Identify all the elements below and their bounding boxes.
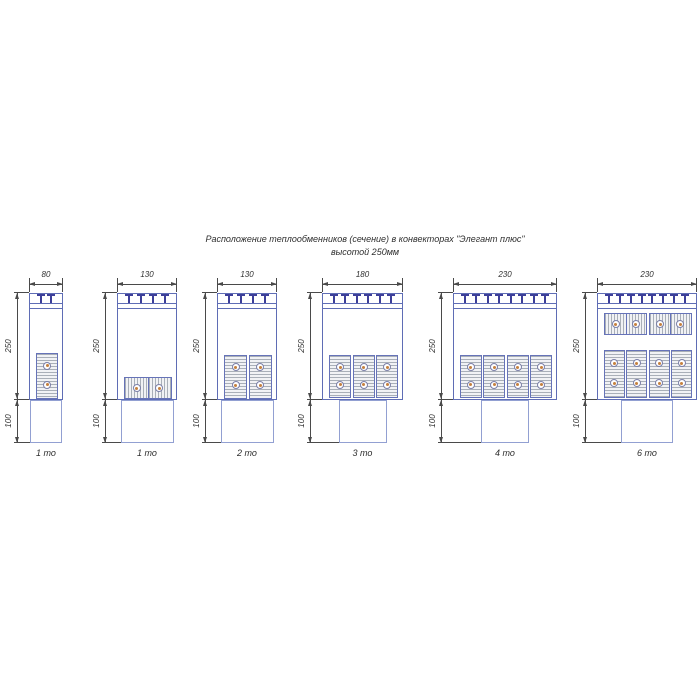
tube-circle — [360, 363, 368, 371]
dimension-arrow-icon — [691, 282, 697, 286]
dimension-arrow-icon — [308, 437, 312, 443]
drawing-title: Расположение теплообменников (сечение) в… — [35, 233, 695, 259]
mounting-clip-icon — [125, 294, 133, 303]
bottom-duct — [621, 400, 673, 443]
dimension-arrow-icon — [103, 437, 107, 443]
dimension-arrow-icon — [217, 282, 223, 286]
dimension-arrow-icon — [203, 293, 207, 299]
body-grille-line — [454, 303, 556, 304]
tube-circle — [655, 379, 663, 387]
dimension-arrow-icon — [439, 400, 443, 406]
mounting-clip-icon — [605, 294, 613, 303]
dimension-arrow-icon — [203, 437, 207, 443]
width-dimension-line — [117, 284, 177, 285]
mounting-clip-icon — [364, 294, 372, 303]
dimension-arrow-icon — [551, 282, 557, 286]
width-dimension-label: 130 — [202, 270, 292, 279]
mounting-clip-icon — [149, 294, 157, 303]
body-grille-line — [598, 308, 696, 309]
mounting-clip-icon — [518, 294, 526, 303]
mounting-clip-icon — [137, 294, 145, 303]
heat-exchanger-block — [604, 350, 625, 398]
dimension-arrow-icon — [583, 400, 587, 406]
body-grille-line — [218, 303, 276, 304]
heat-exchanger-block — [329, 355, 351, 398]
height-dimension-label: 250 — [4, 331, 14, 361]
tube-circle — [467, 363, 475, 371]
drawing-title-line2: высотой 250мм — [35, 246, 695, 259]
mounting-clip-icon — [659, 294, 667, 303]
tube-circle — [43, 381, 51, 389]
tube-circle — [336, 381, 344, 389]
mounting-clip-icon — [648, 294, 656, 303]
dimension-arrow-icon — [439, 437, 443, 443]
tail-height-dimension-label: 100 — [92, 406, 102, 436]
tube-circle — [360, 381, 368, 389]
tube-circle — [514, 381, 522, 389]
tube-circle — [232, 363, 240, 371]
heat-exchanger-block — [249, 355, 272, 399]
mounting-clip-icon — [530, 294, 538, 303]
exchanger-row — [36, 353, 58, 399]
mounting-clip-icon — [376, 294, 384, 303]
tail-height-dimension-label: 100 — [572, 406, 582, 436]
height-dimension-line — [205, 293, 206, 443]
dimension-arrow-icon — [308, 293, 312, 299]
width-dimension-line — [597, 284, 697, 285]
tube-circle — [537, 381, 545, 389]
block-divider-line — [626, 314, 627, 334]
dimension-arrow-icon — [103, 400, 107, 406]
height-dimension-line — [17, 293, 18, 443]
tube-circle — [656, 320, 664, 328]
mounting-clip-icon — [47, 294, 55, 303]
exchanger-row — [460, 355, 552, 398]
bottom-duct — [221, 400, 274, 443]
body-grille-line — [454, 308, 556, 309]
dimension-arrow-icon — [439, 293, 443, 299]
width-dimension-line — [217, 284, 277, 285]
dimension-arrow-icon — [583, 393, 587, 399]
exchanger-row — [124, 377, 172, 399]
dimension-arrow-icon — [117, 282, 123, 286]
height-dimension-line — [310, 293, 311, 443]
mounting-clip-icon — [541, 294, 549, 303]
dimension-arrow-icon — [397, 282, 403, 286]
dimension-arrow-icon — [103, 393, 107, 399]
dimension-arrow-icon — [583, 437, 587, 443]
tube-circle — [678, 379, 686, 387]
body-grille-line — [118, 303, 176, 304]
mounting-clip-icon — [495, 294, 503, 303]
mounting-clip-icon — [353, 294, 361, 303]
unit-count-label: 4 то — [465, 448, 545, 458]
exchanger-row — [604, 350, 692, 398]
unit-count-label: 1 то — [107, 448, 187, 458]
tube-circle — [514, 363, 522, 371]
heat-exchanger-block — [671, 350, 692, 398]
width-dimension-label: 230 — [438, 270, 572, 279]
extension-line — [582, 442, 625, 443]
dimension-arrow-icon — [308, 393, 312, 399]
dimension-arrow-icon — [29, 282, 35, 286]
heat-exchanger-block — [376, 355, 398, 398]
body-grille-line — [218, 308, 276, 309]
height-dimension-label: 250 — [428, 331, 438, 361]
exchanger-row — [604, 313, 692, 335]
dimension-arrow-icon — [597, 282, 603, 286]
body-grille-line — [118, 308, 176, 309]
heat-exchanger-block — [626, 350, 647, 398]
tail-height-dimension-label: 100 — [4, 406, 14, 436]
body-grille-line — [30, 308, 62, 309]
tube-circle — [678, 359, 686, 367]
mounting-clip-icon — [387, 294, 395, 303]
height-dimension-line — [441, 293, 442, 443]
width-dimension-label: 80 — [14, 270, 78, 279]
mounting-clip-icon — [341, 294, 349, 303]
body-grille-line — [323, 303, 402, 304]
exchanger-row — [224, 355, 272, 399]
bottom-duct — [30, 400, 62, 443]
tube-circle — [612, 320, 620, 328]
tube-circle — [256, 363, 264, 371]
exchanger-row — [329, 355, 398, 398]
heat-exchanger-block — [224, 355, 247, 399]
height-dimension-label: 250 — [192, 331, 202, 361]
mounting-clip-icon — [237, 294, 245, 303]
dimension-arrow-icon — [15, 293, 19, 299]
height-dimension-label: 250 — [92, 331, 102, 361]
heat-exchanger-block — [649, 350, 670, 398]
height-dimension-label: 250 — [572, 331, 582, 361]
mounting-clip-icon — [161, 294, 169, 303]
width-dimension-line — [322, 284, 403, 285]
heat-exchanger-block — [353, 355, 375, 398]
dimension-arrow-icon — [15, 437, 19, 443]
tube-circle — [467, 381, 475, 389]
mounting-clip-icon — [638, 294, 646, 303]
unit-count-label: 1 то — [6, 448, 86, 458]
tube-circle — [336, 363, 344, 371]
mounting-clip-icon — [249, 294, 257, 303]
dimension-arrow-icon — [203, 393, 207, 399]
mounting-clip-icon — [484, 294, 492, 303]
mounting-clip-icon — [461, 294, 469, 303]
bottom-duct — [481, 400, 529, 443]
drawing-canvas: Расположение теплообменников (сечение) в… — [0, 0, 700, 700]
dimension-arrow-icon — [271, 282, 277, 286]
tube-circle — [610, 359, 618, 367]
width-dimension-label: 230 — [582, 270, 700, 279]
tube-circle — [256, 381, 264, 389]
heat-exchanger-block — [124, 377, 172, 399]
dimension-arrow-icon — [439, 393, 443, 399]
tube-circle — [537, 363, 545, 371]
tube-circle — [43, 362, 51, 370]
width-dimension-line — [453, 284, 557, 285]
dimension-arrow-icon — [453, 282, 459, 286]
unit-count-label: 6 то — [607, 448, 687, 458]
heat-exchanger-block — [604, 313, 647, 335]
drawing-title-line1: Расположение теплообменников (сечение) в… — [35, 233, 695, 246]
dimension-arrow-icon — [57, 282, 63, 286]
extension-line — [438, 442, 485, 443]
unit-count-label: 3 то — [323, 448, 403, 458]
dimension-arrow-icon — [103, 293, 107, 299]
dimension-arrow-icon — [171, 282, 177, 286]
tube-circle — [133, 384, 141, 392]
tail-height-dimension-label: 100 — [297, 406, 307, 436]
tube-circle — [676, 320, 684, 328]
dimension-arrow-icon — [322, 282, 328, 286]
height-dimension-line — [585, 293, 586, 443]
block-divider-line — [670, 314, 671, 334]
dimension-arrow-icon — [308, 400, 312, 406]
mounting-clip-icon — [472, 294, 480, 303]
tube-circle — [632, 320, 640, 328]
heat-exchanger-block — [507, 355, 529, 398]
bottom-duct — [339, 400, 387, 443]
tube-circle — [155, 384, 163, 392]
tail-height-dimension-label: 100 — [192, 406, 202, 436]
body-grille-line — [323, 308, 402, 309]
heat-exchanger-block — [530, 355, 552, 398]
heat-exchanger-block — [36, 353, 58, 399]
mounting-clip-icon — [681, 294, 689, 303]
mounting-clip-icon — [670, 294, 678, 303]
body-grille-line — [30, 303, 62, 304]
heat-exchanger-block — [483, 355, 505, 398]
tail-height-dimension-label: 100 — [428, 406, 438, 436]
block-divider-line — [148, 378, 149, 398]
extension-line — [307, 442, 343, 443]
tube-circle — [610, 379, 618, 387]
tube-circle — [490, 381, 498, 389]
height-dimension-label: 250 — [297, 331, 307, 361]
tube-circle — [633, 359, 641, 367]
dimension-arrow-icon — [15, 393, 19, 399]
tube-circle — [655, 359, 663, 367]
tube-circle — [633, 379, 641, 387]
bottom-duct — [121, 400, 174, 443]
dimension-arrow-icon — [203, 400, 207, 406]
heat-exchanger-block — [649, 313, 692, 335]
mounting-clip-icon — [261, 294, 269, 303]
width-dimension-label: 130 — [102, 270, 192, 279]
unit-count-label: 2 то — [207, 448, 287, 458]
mounting-clip-icon — [627, 294, 635, 303]
mounting-clip-icon — [507, 294, 515, 303]
dimension-arrow-icon — [15, 400, 19, 406]
dimension-arrow-icon — [583, 293, 587, 299]
mounting-clip-icon — [616, 294, 624, 303]
tube-circle — [383, 381, 391, 389]
tube-circle — [383, 363, 391, 371]
height-dimension-line — [105, 293, 106, 443]
tube-circle — [232, 381, 240, 389]
heat-exchanger-block — [460, 355, 482, 398]
body-grille-line — [598, 303, 696, 304]
tube-circle — [490, 363, 498, 371]
mounting-clip-icon — [37, 294, 45, 303]
mounting-clip-icon — [330, 294, 338, 303]
mounting-clip-icon — [225, 294, 233, 303]
